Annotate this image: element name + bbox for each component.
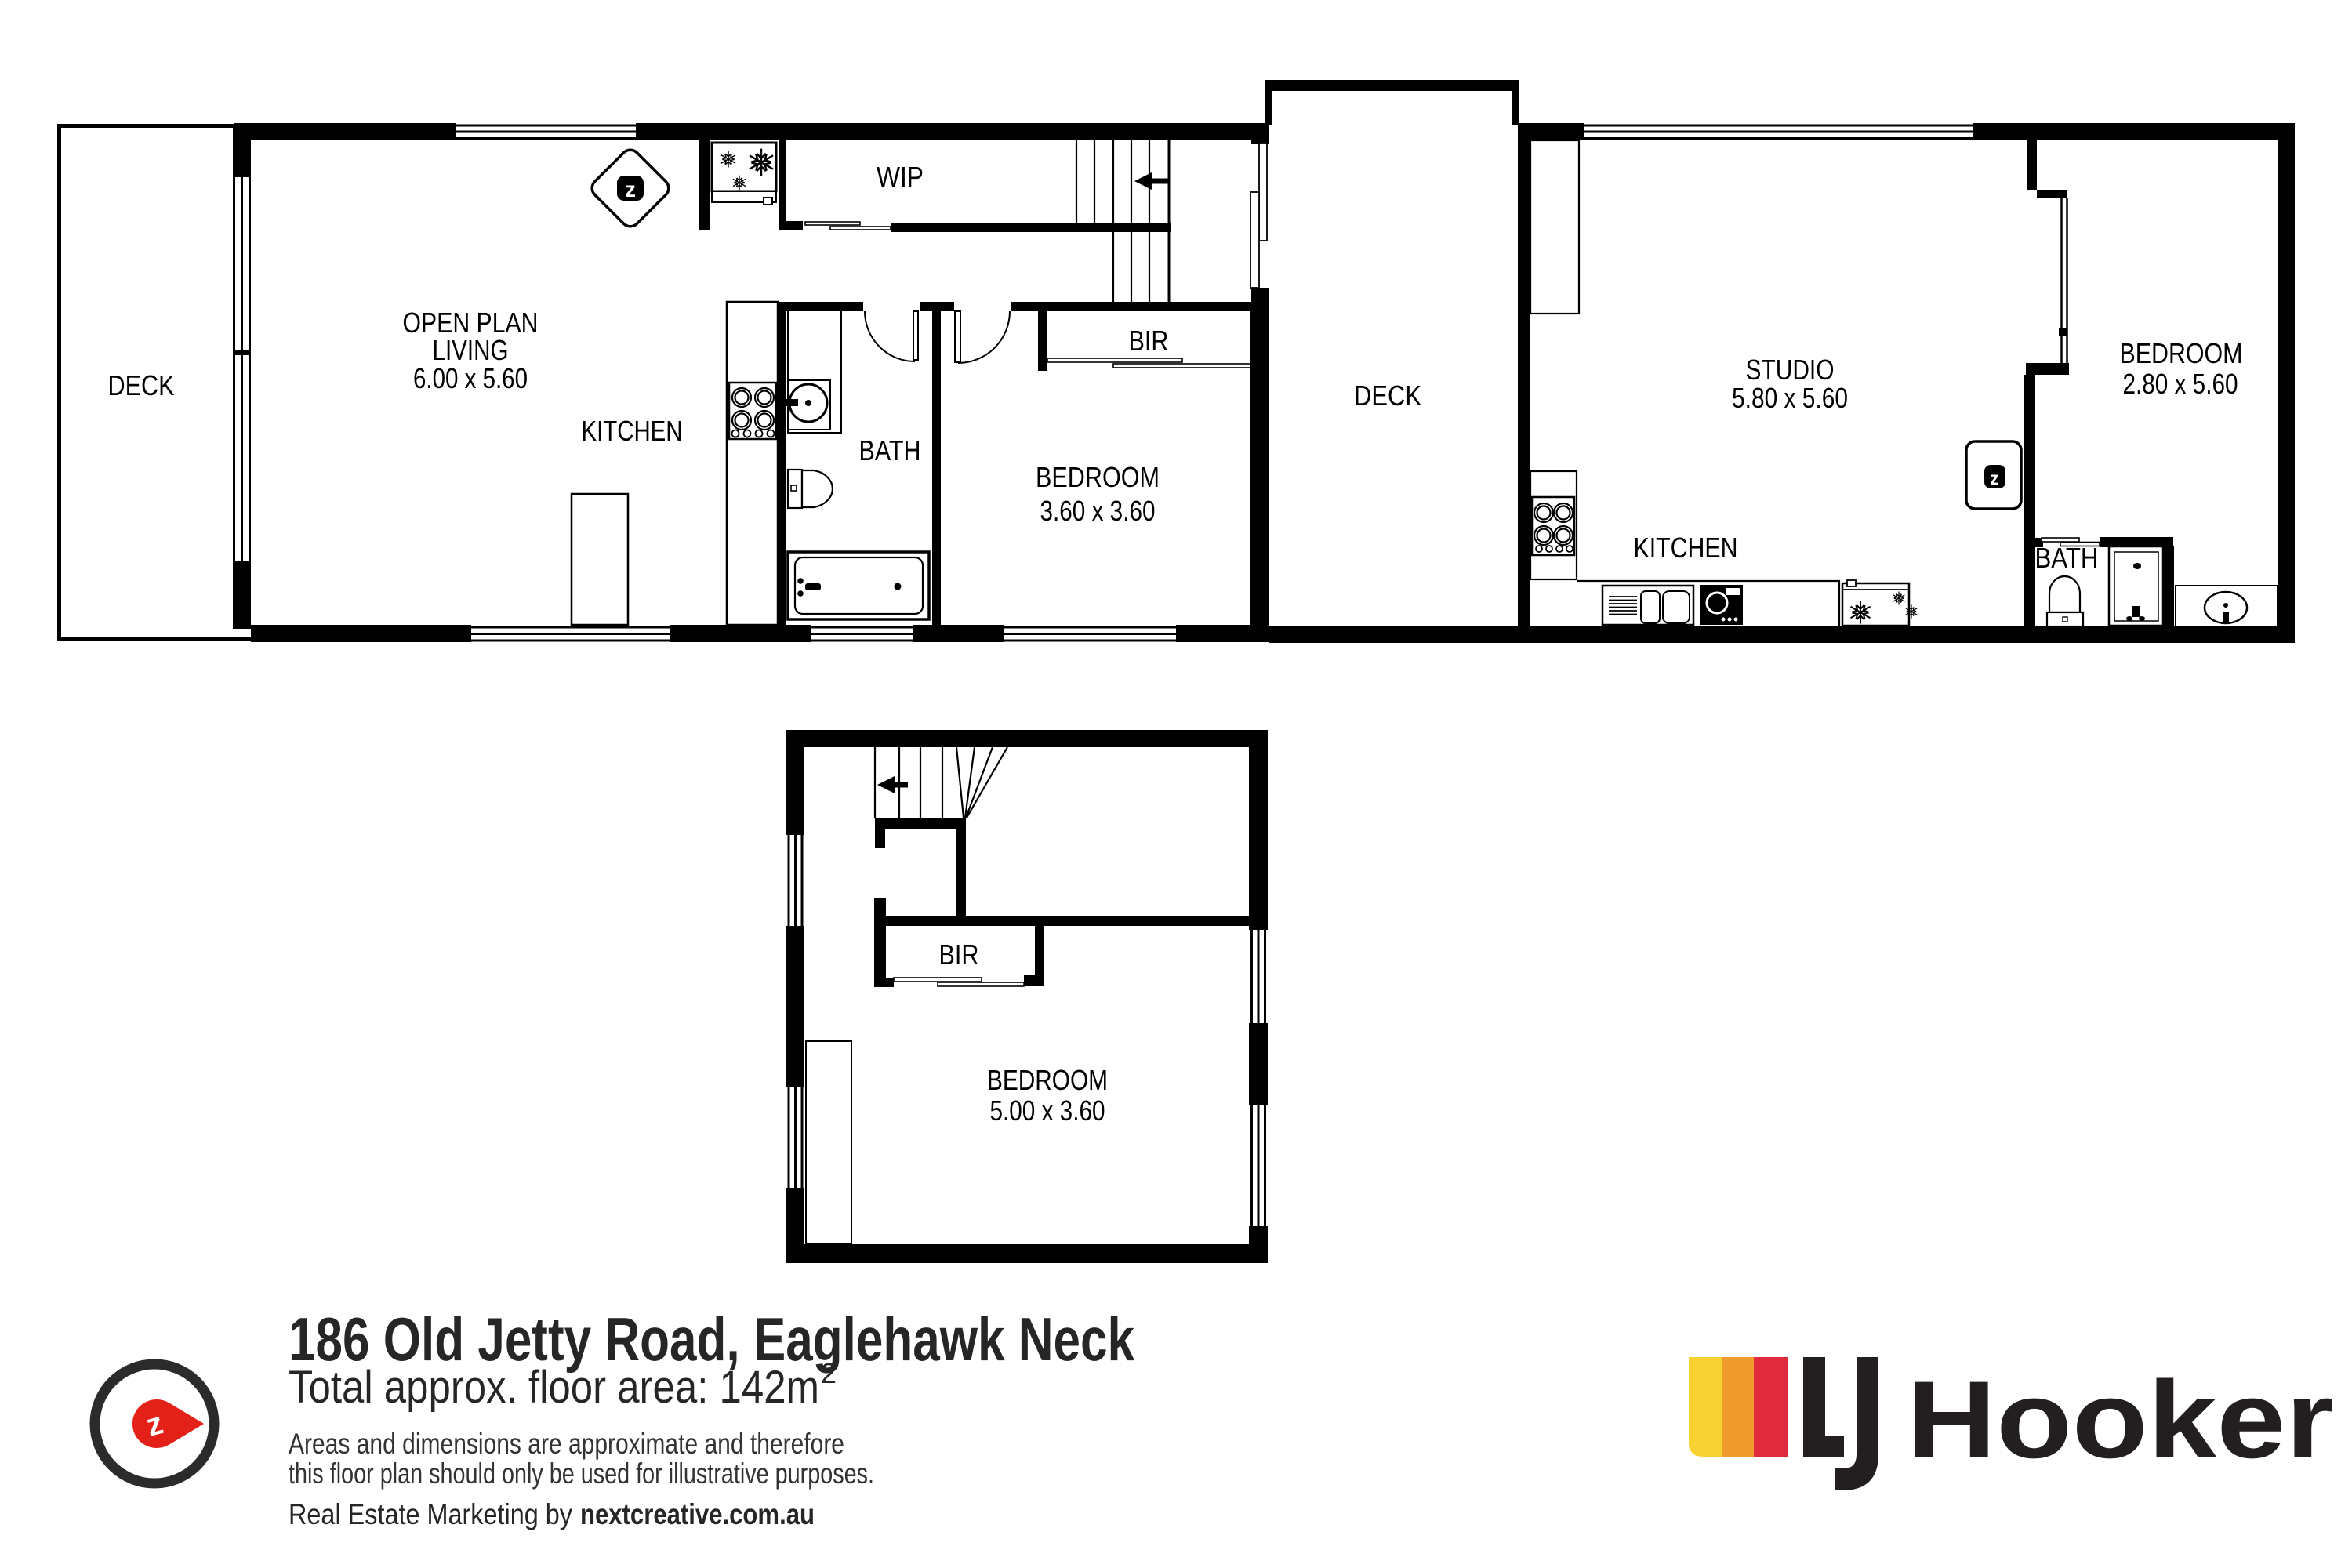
svg-text:BATH: BATH [2035, 542, 2099, 574]
svg-text:BIR: BIR [1129, 325, 1169, 357]
svg-text:6.00 x 5.60: 6.00 x 5.60 [413, 362, 528, 394]
svg-text:STUDIO: STUDIO [1746, 354, 1835, 386]
svg-text:nextcreative.com.au: nextcreative.com.au [580, 1498, 815, 1530]
svg-text:BEDROOM: BEDROOM [2120, 337, 2243, 369]
svg-text:DECK: DECK [108, 369, 175, 401]
svg-text:WIP: WIP [877, 161, 924, 193]
svg-text:3.60 x 3.60: 3.60 x 3.60 [1040, 495, 1156, 527]
svg-text:Total approx. floor area: 142m: Total approx. floor area: 142m [289, 1362, 819, 1413]
svg-text:BEDROOM: BEDROOM [1036, 461, 1160, 493]
svg-text:DECK: DECK [1354, 379, 1421, 412]
svg-text:BEDROOM: BEDROOM [987, 1064, 1108, 1096]
svg-text:5.80 x 5.60: 5.80 x 5.60 [1732, 382, 1848, 414]
svg-text:BATH: BATH [859, 434, 921, 466]
svg-text:5.00 x 3.60: 5.00 x 3.60 [990, 1094, 1105, 1127]
svg-text:Hooker: Hooker [1907, 1358, 2334, 1481]
svg-text:KITCHEN: KITCHEN [1634, 532, 1738, 564]
svg-text:Areas and dimensions are appro: Areas and dimensions are approximate and… [289, 1428, 844, 1460]
svg-text:z: z [625, 177, 636, 201]
svg-text:2: 2 [821, 1357, 837, 1389]
svg-text:LIVING: LIVING [433, 334, 509, 366]
svg-text:Real Estate Marketing by: Real Estate Marketing by [289, 1498, 572, 1530]
svg-text:this floor plan should only be: this floor plan should only be used for … [289, 1457, 874, 1490]
svg-text:z: z [1990, 468, 1999, 488]
svg-text:2.80 x 5.60: 2.80 x 5.60 [2123, 368, 2238, 400]
svg-text:BIR: BIR [939, 938, 979, 971]
svg-text:KITCHEN: KITCHEN [582, 415, 683, 447]
